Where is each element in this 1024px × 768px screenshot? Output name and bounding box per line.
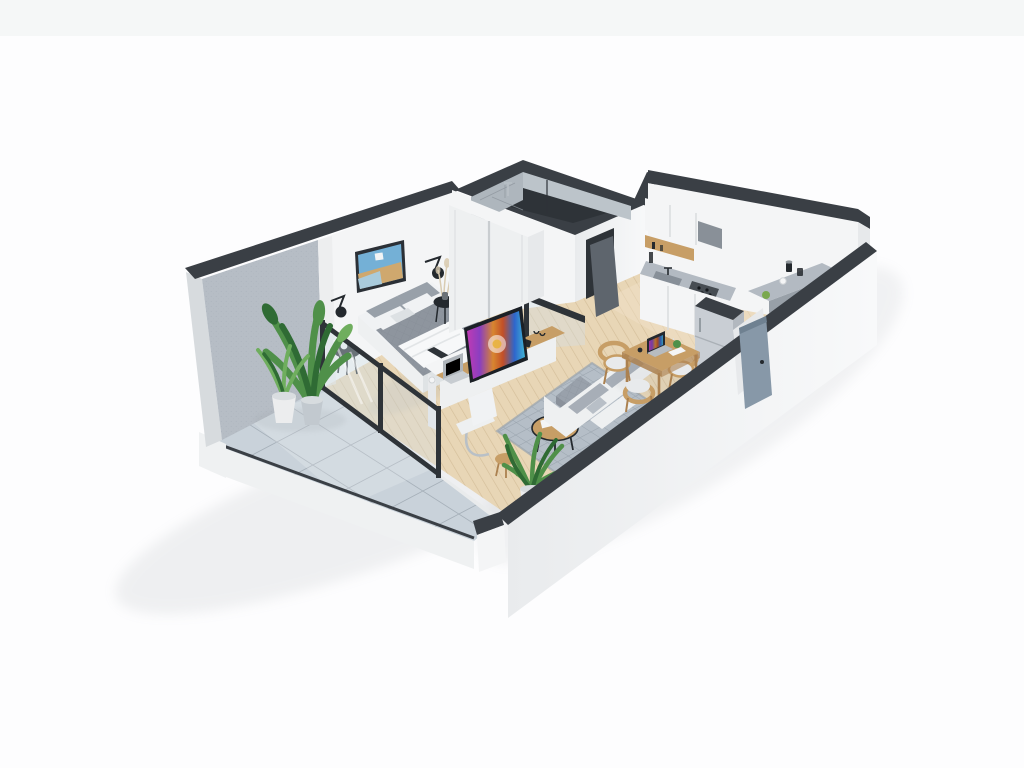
background-top-band — [0, 0, 1024, 36]
floorplan-render — [0, 0, 1024, 768]
plants-shadow — [254, 408, 346, 432]
shelf-jar — [660, 245, 663, 251]
apartment-3d-floorplan — [0, 0, 1024, 768]
kitchen-part — [697, 286, 700, 289]
shelf-jar — [652, 242, 655, 249]
jar — [786, 263, 792, 272]
tv-screen-art — [493, 340, 502, 349]
door-handle — [760, 360, 764, 364]
coffee-cup — [429, 377, 435, 383]
pot-rim — [272, 392, 296, 400]
cup — [780, 278, 786, 284]
plant-sprig — [673, 340, 681, 348]
pot-rim — [301, 396, 323, 404]
divider-post — [436, 406, 441, 478]
cup — [638, 348, 643, 353]
wardrobe-side — [528, 230, 544, 303]
divider-post — [378, 363, 383, 433]
jar — [797, 268, 803, 276]
pampas-vase-part — [436, 266, 441, 274]
pampas-vase-part — [442, 292, 448, 300]
green-apple — [762, 291, 770, 299]
chair-seat — [626, 379, 650, 393]
jar-lid — [786, 260, 793, 263]
kitchen-part — [705, 288, 708, 291]
artwork-building — [375, 252, 384, 260]
counter-bottle — [649, 252, 653, 263]
lamp-shade — [336, 307, 347, 318]
